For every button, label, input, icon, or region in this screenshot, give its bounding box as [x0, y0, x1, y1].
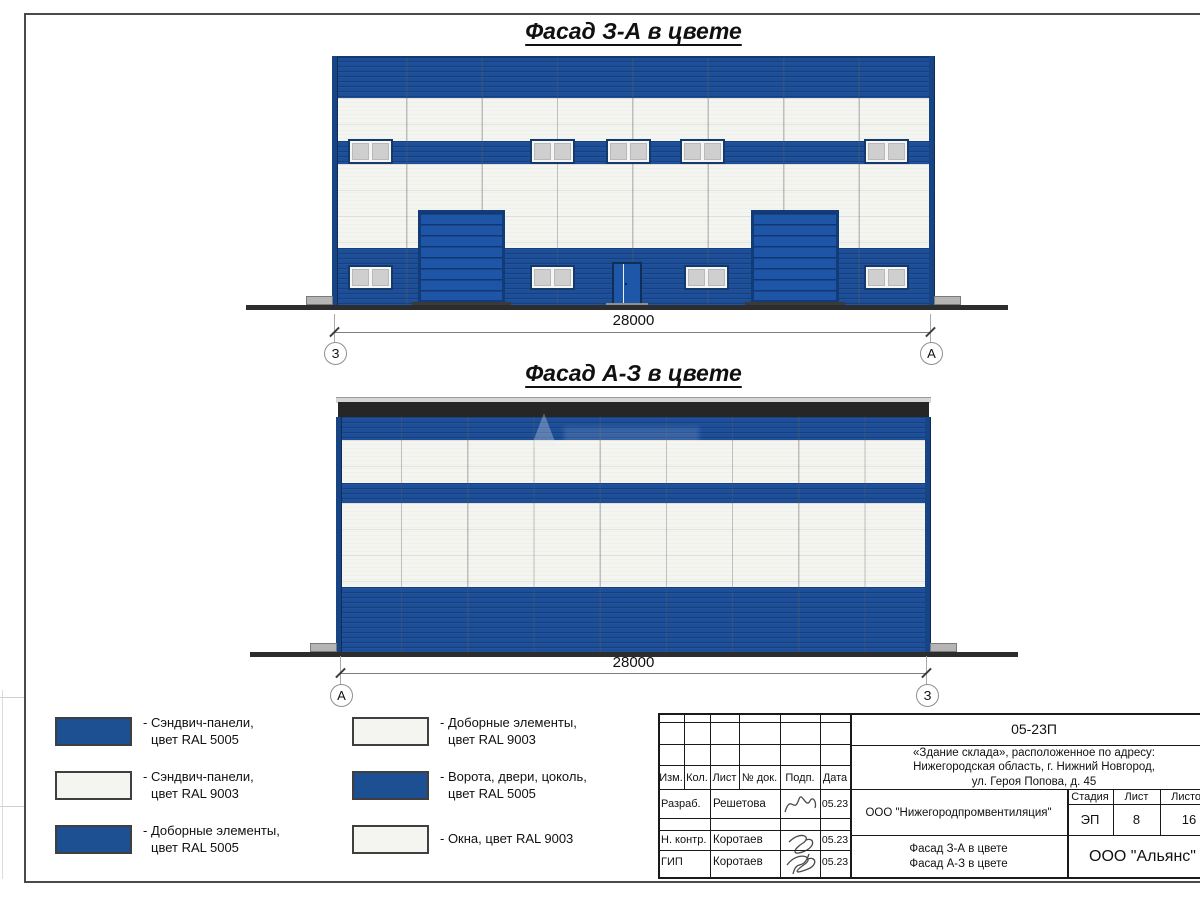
- stamp-company: ООО "Альянс": [1067, 835, 1200, 879]
- stamp-content-title: Фасад З-А в цвете Фасад А-З в цвете: [850, 835, 1067, 879]
- window: [864, 265, 909, 290]
- legend-label: - Доборные элементы, цвет RAL 5005: [143, 822, 343, 857]
- stamp-sheets-header: Листов: [1160, 789, 1200, 804]
- stamp-sheet-header: Лист: [1113, 789, 1160, 804]
- legend-swatch: [352, 825, 429, 854]
- stamp-name: Коротаев: [710, 830, 780, 850]
- stamp-sheet-value: 8: [1113, 804, 1160, 835]
- window: [864, 139, 909, 164]
- plinth-step: [306, 296, 333, 305]
- legend-swatch: [352, 717, 429, 746]
- facade-1-title: Фасад З-А в цвете: [332, 18, 935, 45]
- watermark-logo: [531, 413, 557, 447]
- watermark-text: [564, 427, 699, 445]
- plinth-step: [934, 296, 961, 305]
- legend-label: - Ворота, двери, цоколь, цвет RAL 5005: [440, 768, 655, 803]
- legend-swatch: [55, 717, 132, 746]
- stamp-sheets-value: 16: [1160, 804, 1200, 835]
- stamp-role: Разраб.: [658, 790, 710, 818]
- stamp-name: Решетова: [710, 790, 780, 818]
- window: [530, 265, 575, 290]
- window: [606, 139, 651, 164]
- dimension-line: [335, 332, 931, 333]
- legend-label: - Сэндвич-панели, цвет RAL 9003: [143, 768, 343, 803]
- dimension-label: 28000: [332, 312, 935, 329]
- margin-line: [0, 697, 24, 698]
- legend-label: - Доборные элементы, цвет RAL 9003: [440, 714, 655, 749]
- coping-dark: [338, 402, 929, 417]
- stamp-col-list: Лист: [710, 766, 739, 789]
- corner-trim-left: [336, 417, 342, 652]
- sectional-gate: [418, 210, 505, 303]
- stamp-role: ГИП: [658, 850, 710, 874]
- legend-swatch: [55, 771, 132, 800]
- stamp-project: «Здание склада», расположенное по адресу…: [850, 746, 1200, 789]
- stamp-stage-value: ЭП: [1067, 804, 1113, 835]
- dimension-label: 28000: [336, 654, 931, 671]
- stamp-col-izm: Изм.: [658, 766, 684, 789]
- window: [530, 139, 575, 164]
- window: [348, 265, 393, 290]
- legend: - Сэндвич-панели, цвет RAL 5005 - Сэндви…: [0, 710, 660, 870]
- legend-label: - Сэндвич-панели, цвет RAL 5005: [143, 714, 343, 749]
- dimension-line: [341, 673, 927, 674]
- stamp-role: Н. контр.: [658, 830, 710, 850]
- legend-label: - Окна, цвет RAL 9003: [440, 822, 655, 857]
- stamp-date: 05.23: [820, 830, 850, 850]
- legend-swatch: [55, 825, 132, 854]
- window: [348, 139, 393, 164]
- corner-trim-right: [925, 417, 931, 652]
- axis-marker: А: [330, 684, 353, 707]
- ground-line: [246, 305, 1008, 310]
- stamp-col-kol: Кол.: [684, 766, 710, 789]
- axis-marker: З: [916, 684, 939, 707]
- sectional-gate: [751, 210, 839, 303]
- facade-2-title: Фасад А-З в цвете: [336, 360, 931, 387]
- window: [684, 265, 729, 290]
- stamp-doc-number: 05-23П: [850, 713, 1200, 745]
- plinth-step: [310, 643, 337, 652]
- panel-joints: [336, 417, 931, 652]
- stamp-date: 05.23: [820, 850, 850, 874]
- stamp-name: Коротаев: [710, 850, 780, 874]
- plinth-step: [930, 643, 957, 652]
- stamp-stage-header: Стадия: [1067, 789, 1113, 804]
- window: [680, 139, 725, 164]
- corner-trim-left: [332, 56, 338, 305]
- facade-1-drawing: [332, 56, 935, 305]
- stamp-col-data: Дата: [820, 766, 850, 789]
- stamp-organization: ООО "Нижегородпромвентиляция": [850, 790, 1067, 835]
- stamp-col-doc: № док.: [739, 766, 780, 789]
- corner-trim-right: [929, 56, 935, 305]
- parapet-edge: [332, 56, 935, 58]
- signature: [781, 828, 819, 878]
- facade-2-drawing: [336, 397, 931, 652]
- drawing-sheet: Фасад З-А в цвете: [0, 0, 1200, 900]
- stamp-col-podp: Подп.: [780, 766, 820, 789]
- stamp-date: 05.23: [820, 790, 850, 818]
- legend-swatch: [352, 771, 429, 800]
- signature: [781, 791, 819, 817]
- entrance-door: [612, 262, 642, 305]
